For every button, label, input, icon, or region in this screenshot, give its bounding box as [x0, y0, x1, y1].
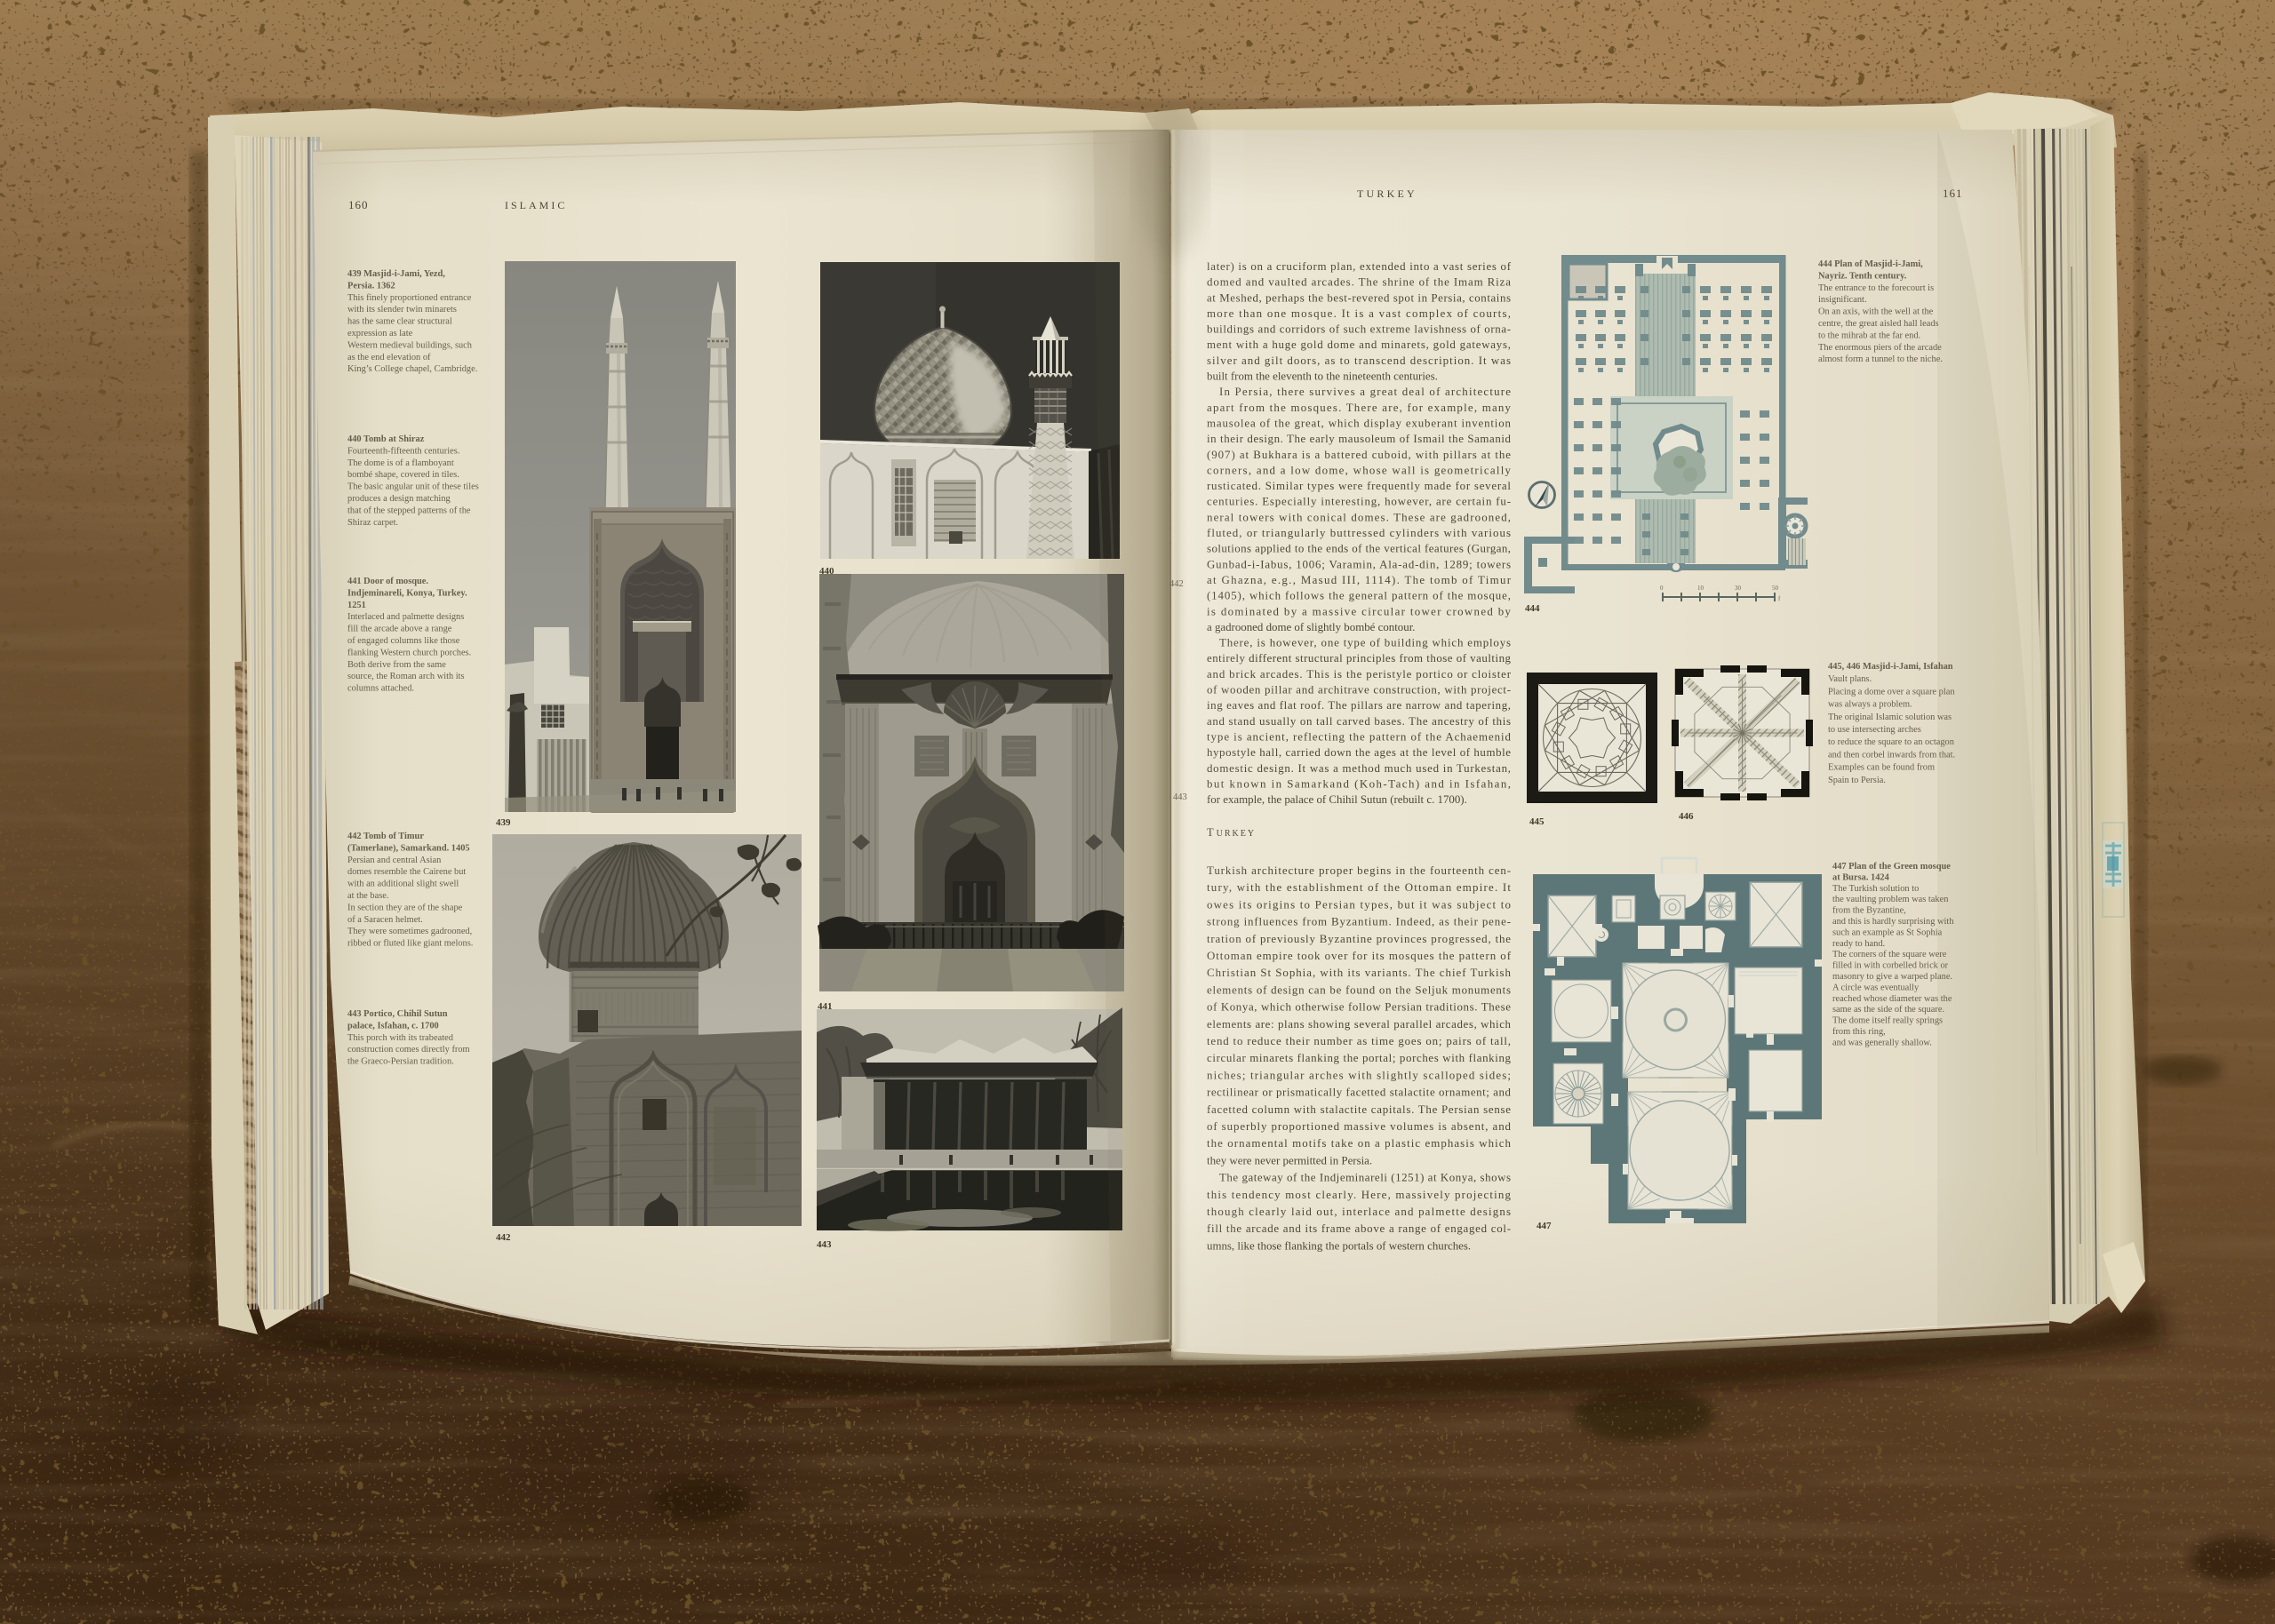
svg-text:from this ring,: from this ring, [1832, 1027, 1886, 1037]
svg-text:apart from the mosques. There: apart from the mosques. There are, for e… [1207, 402, 1512, 414]
svg-text:Gunbad-i-Iabus, 1006; Varamin,: Gunbad-i-Iabus, 1006; Varamin, Ala-ad-di… [1207, 558, 1511, 570]
svg-text:rectilinear or prismatically f: rectilinear or prismatically facetted st… [1207, 1087, 1512, 1099]
svg-text:the ornamental motifs take on: the ornamental motifs take on a plastic … [1207, 1137, 1512, 1150]
svg-text:and then corbel inwards from t: and then corbel inwards from that. [1828, 750, 1955, 760]
svg-text:444 Plan of Masjid-i-Jami,: 444 Plan of Masjid-i-Jami, [1818, 259, 1923, 269]
svg-text:centre, the great aisled hall: centre, the great aisled hall leads [1818, 319, 1939, 329]
svg-text:Turkish architecture proper be: Turkish architecture proper begins in th… [1207, 864, 1511, 877]
svg-text:and brick arcades. This is the: and brick arcades. This is the peristyle… [1207, 668, 1512, 681]
svg-text:This porch with its trabeated: This porch with its trabeated [347, 1033, 454, 1043]
svg-text:The dome itself really springs: The dome itself really springs [1832, 1016, 1943, 1026]
svg-text:Placing a dome over a square p: Placing a dome over a square plan [1828, 687, 1955, 697]
svg-text:ISLAMIC: ISLAMIC [505, 199, 567, 211]
svg-text:tration of previously Byzantin: tration of previously Byzantine province… [1207, 933, 1511, 945]
svg-text:tend to reduce their number as: tend to reduce their number as time goes… [1207, 1035, 1511, 1047]
svg-text:Christian St Sophia, with its: Christian St Sophia, with its variants. … [1207, 967, 1512, 979]
svg-text:439: 439 [496, 817, 511, 828]
svg-text:Fourteenth-fifteenth centuries: Fourteenth-fifteenth centuries. [347, 446, 459, 456]
svg-text:almost form a tunnel to the ni: almost form a tunnel to the niche. [1818, 354, 1943, 364]
svg-text:and was generally shallow.: and was generally shallow. [1832, 1038, 1932, 1047]
svg-text:flanking Western church porche: flanking Western church porches. [347, 648, 471, 657]
svg-text:as the end elevation of: as the end elevation of [347, 353, 431, 362]
svg-text:elements of design can be foun: elements of design can be found on the S… [1207, 983, 1511, 996]
svg-text:There, is however, one type of: There, is however, one type of building … [1219, 637, 1511, 649]
svg-text:rusticated. Similar types were: rusticated. Similar types were frequentl… [1207, 480, 1511, 492]
svg-text:in their design. The early mau: in their design. The early mausoleum of … [1207, 433, 1512, 445]
svg-text:fluted, or triangularly buttre: fluted, or triangularly buttressed cylin… [1207, 527, 1511, 539]
svg-text:50: 50 [1772, 585, 1779, 592]
svg-text:elements are: plans showing se: elements are: plans showing several para… [1207, 1018, 1512, 1031]
svg-text:Vault plans.: Vault plans. [1828, 674, 1872, 684]
svg-text:strong influences from Byzanti: strong influences from Byzantium. Indeed… [1207, 916, 1511, 928]
svg-text:445, 446 Masjid-i-Jami, Isfaha: 445, 446 Masjid-i-Jami, Isfahan [1828, 662, 1953, 672]
svg-text:King’s College chapel, Cambrid: King’s College chapel, Cambridge. [347, 364, 477, 374]
svg-text:Both derive from the same: Both derive from the same [347, 660, 446, 670]
svg-text:10: 10 [1697, 585, 1704, 592]
svg-text:domes resemble the Cairene but: domes resemble the Cairene but [347, 867, 466, 877]
svg-text:442 Tomb of Timur: 442 Tomb of Timur [347, 832, 424, 841]
svg-text:Nayriz. Tenth century.: Nayriz. Tenth century. [1818, 271, 1907, 281]
svg-text:Shiraz carpet.: Shiraz carpet. [347, 518, 398, 528]
svg-text:0: 0 [1660, 585, 1664, 592]
svg-text:444: 444 [1525, 603, 1540, 614]
svg-text:ready to hand.: ready to hand. [1832, 939, 1885, 949]
svg-text:domestic design. It was a meth: domestic design. It was a method much us… [1207, 762, 1511, 775]
svg-text:The gateway of the Indjeminare: The gateway of the Indjeminareli (1251) … [1219, 1172, 1511, 1184]
svg-text:30: 30 [1735, 585, 1742, 592]
svg-text:circular minarets flanking the: circular minarets flanking the portal; p… [1207, 1052, 1512, 1064]
svg-text:with an additional slight swel: with an additional slight swell [347, 880, 459, 889]
svg-text:439 Masjid-i-Jami, Yezd,: 439 Masjid-i-Jami, Yezd, [347, 269, 445, 279]
svg-text:160: 160 [348, 198, 369, 211]
svg-text:such an example as St Sophia: such an example as St Sophia [1832, 927, 1943, 937]
svg-text:TURKEY: TURKEY [1357, 187, 1417, 200]
svg-text:The original Islamic solution: The original Islamic solution was [1828, 712, 1952, 722]
svg-text:of engaged columns like those: of engaged columns like those [347, 636, 460, 646]
svg-text:niches; triangular arches with: niches; triangular arches with slightly … [1207, 1069, 1511, 1081]
svg-text:Persian and central Asian: Persian and central Asian [347, 856, 442, 865]
svg-text:domed and vaulted arcades. The: domed and vaulted arcades. The shrine of… [1207, 276, 1511, 289]
svg-text:expression as late: expression as late [347, 329, 413, 338]
svg-text:bombé shape, covered in tiles.: bombé shape, covered in tiles. [347, 470, 459, 480]
svg-text:The entrance to the forecourt: The entrance to the forecourt is [1818, 283, 1934, 293]
svg-text:later) is on a cruciform plan,: later) is on a cruciform plan, extended … [1207, 260, 1512, 273]
svg-text:(Tamerlane), Samarkand. 1405: (Tamerlane), Samarkand. 1405 [347, 843, 470, 853]
svg-text:The basic angular unit of thes: The basic angular unit of these tiles [347, 482, 479, 492]
svg-text:at Ghazna, e.g., Masud III, 11: at Ghazna, e.g., Masud III, 1114). The t… [1207, 574, 1512, 586]
svg-text:is dominated by a massive circ: is dominated by a massive circular tower… [1207, 605, 1512, 617]
svg-text:construction comes directly fr: construction comes directly from [347, 1045, 470, 1055]
svg-text:441 Door of mosque.: 441 Door of mosque. [347, 577, 428, 586]
svg-text:446: 446 [1679, 811, 1694, 822]
svg-text:The corners of the square were: The corners of the square were [1832, 950, 1947, 959]
svg-text:443 Portico, Chihil Sutun: 443 Portico, Chihil Sutun [347, 1009, 448, 1019]
svg-text:insignificant.: insignificant. [1818, 295, 1867, 305]
svg-text:neral towers with conical dome: neral towers with conical domes. These a… [1207, 511, 1511, 523]
svg-text:same as the side of the square: same as the side of the square. [1832, 1005, 1944, 1015]
svg-text:columns attached.: columns attached. [347, 684, 414, 694]
svg-text:ment with a huge gold dome and: ment with a huge gold dome and minarets,… [1207, 338, 1511, 351]
svg-text:ribbed or fluted like giant me: ribbed or fluted like giant melons. [347, 939, 473, 949]
svg-text:at the base.: at the base. [347, 891, 388, 901]
svg-text:at Meshed, perhaps the best-re: at Meshed, perhaps the best-revered spot… [1207, 291, 1511, 304]
svg-text:This finely proportioned entra: This finely proportioned entrance [347, 293, 472, 303]
svg-text:solutions applied to the ends: solutions applied to the ends of the ver… [1207, 543, 1511, 555]
svg-text:masonry to give a warped plane: masonry to give a warped plane. [1832, 972, 1952, 982]
svg-text:owes its origins to Persian ty: owes its origins to Persian types, but i… [1207, 898, 1511, 911]
svg-text:445: 445 [1529, 816, 1545, 827]
svg-text:The enormous piers of the arca: The enormous piers of the arcade [1818, 343, 1942, 353]
svg-text:447: 447 [1537, 1221, 1552, 1231]
svg-text:to the mihrab at the far end.: to the mihrab at the far end. [1818, 330, 1920, 340]
svg-text:Spain to Persia.: Spain to Persia. [1828, 776, 1886, 785]
svg-text:type is ancient, reflecting th: type is ancient, reflecting the pattern … [1207, 731, 1512, 744]
svg-text:A circle was eventually: A circle was eventually [1832, 983, 1920, 992]
svg-text:442: 442 [496, 1232, 511, 1243]
svg-text:(1405), which follows the gene: (1405), which follows the general patter… [1207, 590, 1511, 602]
svg-text:umns, like those flanking the: umns, like those flanking the portals of… [1207, 1239, 1471, 1252]
svg-text:entirely different structural: entirely different structural principles… [1207, 652, 1512, 665]
svg-text:from the Byzantine,: from the Byzantine, [1832, 906, 1906, 916]
svg-text:and stand usually on tall carv: and stand usually on tall carved bases. … [1207, 715, 1511, 728]
svg-text:was always a problem.: was always a problem. [1828, 700, 1912, 710]
svg-text:and this is hardly surprising: and this is hardly surprising with [1832, 917, 1954, 927]
svg-text:corners, and a low dome, whose: corners, and a low dome, whose wall is g… [1207, 464, 1512, 476]
svg-text:at Bursa. 1424: at Bursa. 1424 [1832, 872, 1889, 882]
svg-text:Examples can be found from: Examples can be found from [1828, 763, 1935, 773]
svg-text:447 Plan of the Green mosque: 447 Plan of the Green mosque [1832, 862, 1951, 872]
svg-text:Indjeminareli, Konya, Turkey.: Indjeminareli, Konya, Turkey. [347, 588, 467, 598]
svg-text:Western medieval buildings, su: Western medieval buildings, such [347, 340, 473, 350]
svg-text:Ottoman empire took over for i: Ottoman empire took over for its mosques… [1207, 950, 1512, 962]
svg-text:On an axis, with the well at t: On an axis, with the well at the [1818, 307, 1934, 317]
svg-text:440 Tomb at Shiraz: 440 Tomb at Shiraz [347, 434, 425, 444]
svg-text:has the same clear structural: has the same clear structural [347, 317, 452, 327]
svg-text:The Turkish solution to: The Turkish solution to [1832, 884, 1919, 894]
svg-text:tury, with the establishment o: tury, with the establishment of the Otto… [1207, 881, 1511, 894]
svg-text:ing eaves and flat roof. The p: ing eaves and flat roof. The pillars are… [1207, 699, 1511, 712]
svg-text:of wooden pillar and architrav: of wooden pillar and architrave construc… [1207, 684, 1511, 697]
svg-text:facetted column with stalactit: facetted column with stalactite capitals… [1207, 1103, 1511, 1116]
svg-text:of Konya, which otherwise foll: of Konya, which otherwise follow Persian… [1207, 1001, 1511, 1014]
svg-text:silver and gilt doors, as to t: silver and gilt doors, as to transcend d… [1207, 354, 1511, 367]
svg-text:but known in Samarkand (Koh-Ta: but known in Samarkand (Koh-Tach) and in… [1207, 777, 1511, 790]
svg-text:of superbly proportioned massi: of superbly proportioned massive volumes… [1207, 1120, 1512, 1133]
svg-text:1251: 1251 [347, 601, 366, 610]
svg-text:of a Saracen helmet.: of a Saracen helmet. [347, 915, 423, 925]
svg-text:(907) at Bukhara is a battered: (907) at Bukhara is a battered cuboid, w… [1207, 449, 1511, 461]
svg-text:source, the Roman arch with it: source, the Roman arch with its [347, 672, 465, 681]
svg-text:In section they are of the sha: In section they are of the shape [347, 903, 463, 912]
svg-text:centuries. Especially interest: centuries. Especially interesting, howev… [1207, 496, 1511, 508]
svg-text:that of the stepped patterns o: that of the stepped patterns of the [347, 506, 471, 515]
svg-text:They were sometimes gadrooned,: They were sometimes gadrooned, [347, 927, 472, 936]
svg-text:Interlaced and palmette design: Interlaced and palmette designs [347, 612, 464, 622]
svg-text:mausolea of the great, which d: mausolea of the great, which display exu… [1207, 418, 1512, 430]
svg-text:though clearly laid out, inter: though clearly laid out, interlace and p… [1207, 1206, 1511, 1218]
svg-text:reached whose diameter was the: reached whose diameter was the [1832, 994, 1952, 1004]
svg-text:Persia. 1362: Persia. 1362 [347, 281, 395, 291]
svg-text:with its slender twin minarets: with its slender twin minarets [347, 305, 457, 314]
svg-text:palace, Isfahan, c. 1700: palace, Isfahan, c. 1700 [347, 1021, 439, 1031]
svg-text:to use intersecting arches: to use intersecting arches [1828, 725, 1921, 735]
svg-text:fill the arcade and its frame: fill the arcade and its frame above a ra… [1207, 1222, 1511, 1235]
svg-text:more than one mosque. It is a: more than one mosque. It is a vast compl… [1207, 307, 1511, 320]
svg-text:buildings and corridors of suc: buildings and corridors of such extreme … [1207, 323, 1511, 336]
svg-text:the vaulting problem was taken: the vaulting problem was taken [1832, 895, 1949, 904]
svg-text:the Graeco-Persian tradition.: the Graeco-Persian tradition. [347, 1057, 454, 1067]
svg-text:hypostyle hall, carried down t: hypostyle hall, carried down the ages at… [1207, 746, 1511, 759]
svg-text:to reduce the square to an oct: to reduce the square to an octagon [1828, 737, 1955, 747]
svg-text:443: 443 [817, 1239, 832, 1250]
svg-text:produces a design matching: produces a design matching [347, 494, 451, 504]
svg-text:The dome is of a flamboyant: The dome is of a flamboyant [347, 458, 454, 468]
svg-text:fill the arcade above a range: fill the arcade above a range [347, 625, 452, 634]
svg-text:filled in with corbelled brick: filled in with corbelled brick or [1832, 961, 1949, 971]
svg-text:for example, the palace of Chi: for example, the palace of Chihil Sutun … [1207, 793, 1467, 806]
